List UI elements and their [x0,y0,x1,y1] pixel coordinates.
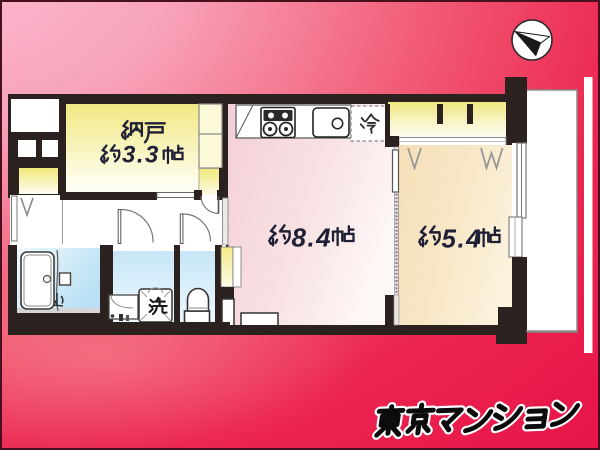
svg-text:8.4: 8.4 [292,223,333,253]
svg-text:5.4: 5.4 [442,224,483,254]
svg-text:3.3: 3.3 [122,142,160,169]
